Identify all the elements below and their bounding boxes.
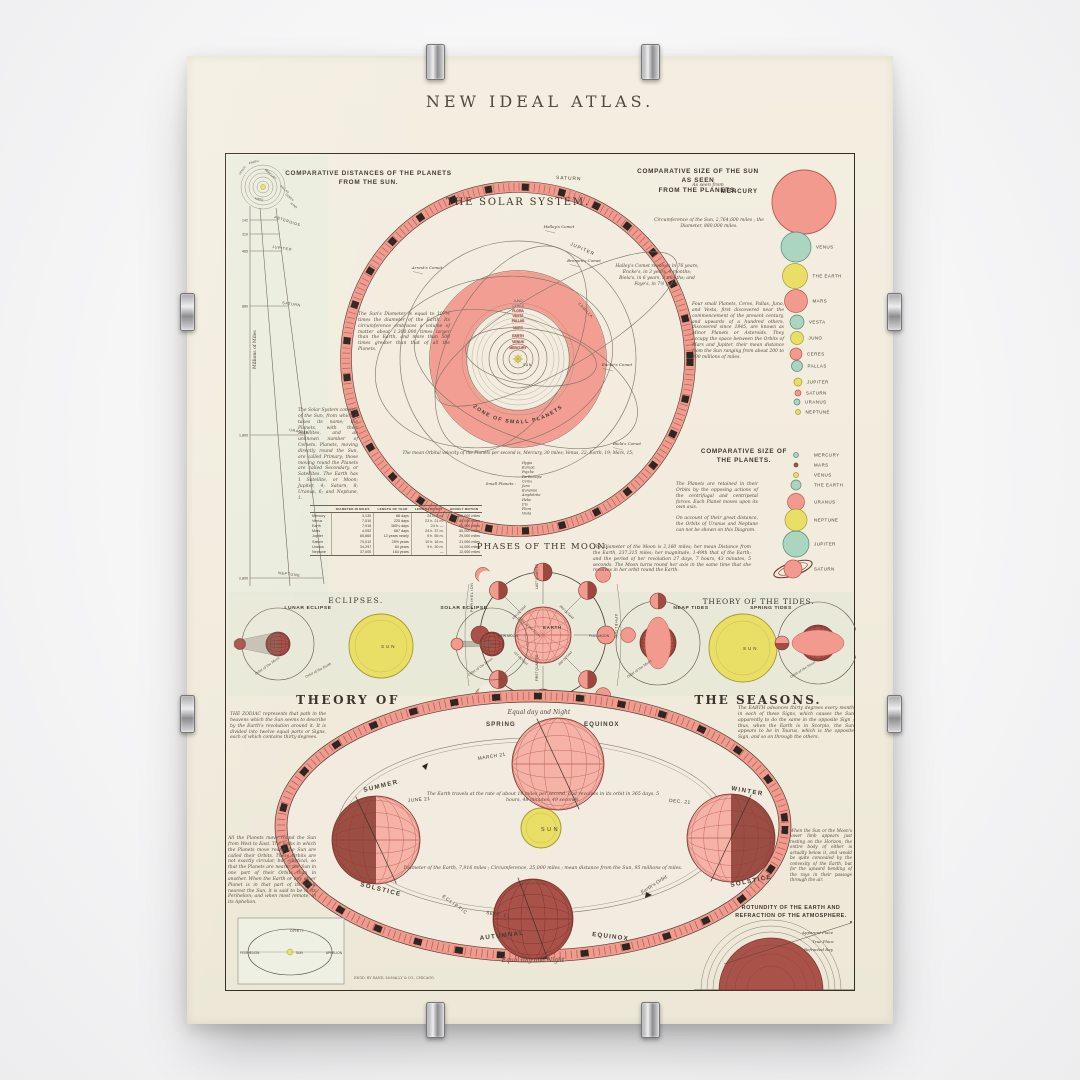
the earth-label: THE EARTH xyxy=(813,274,842,279)
orbit-name-pallas: PALLAS xyxy=(512,319,525,323)
small-planet-name: Amphitrite xyxy=(521,493,541,497)
product-photo: NEW IDEAL ATLAS. xyxy=(0,0,1080,1080)
planet-orbits-note: All the Planets move round the Sun from … xyxy=(228,836,316,906)
orbit-name-venus: VENUS xyxy=(512,340,524,344)
g-planetsizes-uranus xyxy=(788,494,805,511)
equal-day-night-bottom: Equal day and Night xyxy=(478,957,588,965)
orbit-name-earth: EARTH xyxy=(512,334,524,338)
globe-half-right xyxy=(687,794,775,882)
framed-poster: NEW IDEAL ATLAS. xyxy=(187,56,893,1024)
orbit-box-sun-label: SUN xyxy=(296,951,303,955)
g-planetsizes-jupiter xyxy=(783,531,809,557)
outer-moon xyxy=(621,628,636,643)
last-quarter-label: LAST QUARTER xyxy=(535,563,539,589)
saturn-label: SATURN xyxy=(814,567,835,572)
mercury-label: MERCURY xyxy=(814,453,840,458)
table-row: Neptune37,000164 years—12,000 miles xyxy=(310,549,482,555)
sun-diameter-note: The Sun's Diameter is equal to 107½ time… xyxy=(358,312,450,353)
uranus-label: URANUS xyxy=(805,400,827,405)
g-sunsizes-pallas xyxy=(792,361,803,372)
orbit-box-sun xyxy=(287,949,293,955)
uranus-label: URANUS xyxy=(814,500,836,505)
jupiter-label: JUPITER xyxy=(807,380,829,385)
fan-tick-value: 310 xyxy=(242,232,248,236)
venus-label: VENUS xyxy=(816,245,834,250)
seasons-heading-left: THEORY OF xyxy=(288,693,408,707)
publisher-imprint: ENGD. BY RAND, McNALLY & CO., CHICAGO. xyxy=(354,976,494,980)
fan-axis-label: Millions of Miles xyxy=(252,330,258,369)
fan-tick-value: 880 xyxy=(242,304,248,308)
tides-heading: THEORY OF THE TIDES. xyxy=(676,597,841,606)
earth-dome xyxy=(719,938,823,990)
moon-earth-label: EARTH xyxy=(543,625,562,630)
new-moon-label: NEW MOON xyxy=(498,634,518,638)
equal-day-night-top: Equal day and Night xyxy=(484,709,594,717)
ceres-label: CERES xyxy=(807,352,825,357)
eclipsed-moon xyxy=(235,639,246,650)
uranus-neptune-note: On account of their great distance, the … xyxy=(676,516,758,534)
orbital-velocity-note: The mean Orbital velocity of the Planets… xyxy=(388,451,648,457)
first-quarter-label: FIRST QUARTER xyxy=(535,654,539,681)
refraction-note: When the Sun or the Moon's lower limb ap… xyxy=(790,828,852,883)
venus-label: VENUS xyxy=(814,473,832,478)
aphelion-label: APHELION xyxy=(614,614,618,639)
orbit-name-mars: MARS xyxy=(513,326,524,330)
saturn-ring-label: SATURN xyxy=(556,175,582,182)
g-planetsizes-venus xyxy=(794,473,799,478)
seasons-diagram: SUN SPRING EQUINOX MARCH 21 SUMMER JUNE … xyxy=(275,690,791,962)
chart-area: MERCURYVENUSEARTHMARSPALLASVESTAFLORACER… xyxy=(225,153,855,991)
neap-tides-label: NEAP TIDES xyxy=(658,606,724,611)
table-header xyxy=(310,506,332,513)
g-sunsizes-mars xyxy=(785,290,808,313)
small-planet-name: Iris xyxy=(521,502,528,506)
planet-data-table: DIAMETER IN MILESLENGTH OF YEARLENGTH OF… xyxy=(310,505,482,589)
earth-diameter-note: Diameter of the Earth, 7,916 miles ; Cir… xyxy=(393,866,693,872)
full-moon-label: FULL MOON xyxy=(589,634,610,638)
moon-note: The Diameter of the Moon is 2,160 miles;… xyxy=(593,545,751,574)
table-header: HOURLY MOTION xyxy=(446,506,482,513)
g-sunsizes-venus xyxy=(781,232,811,262)
eclipsing-moon xyxy=(451,638,463,650)
small-planet-name: Vesta xyxy=(522,512,531,516)
g-sunsizes-neptune xyxy=(796,410,801,415)
frame-clip-right-upper xyxy=(887,293,902,331)
solar-eclipse-label: SOLAR ECLIPSE xyxy=(431,606,497,611)
sun-circumference-note: Circumference of the Sun, 2,764,600 mile… xyxy=(646,218,772,230)
tides-sun-label: SUN xyxy=(743,646,759,651)
g-sunsizes-vesta xyxy=(790,315,804,329)
refracted-ray-label: Refracted Ray xyxy=(803,947,834,952)
fan-tick-value: 142 xyxy=(242,218,248,222)
g-planetsizes-saturn xyxy=(784,560,802,578)
g-sunsizes-the-earth xyxy=(783,264,808,289)
small-planet-name: Hygia xyxy=(521,461,532,465)
poster-title: NEW IDEAL ATLAS. xyxy=(187,92,893,111)
comet-label: Brorsen's Comet xyxy=(566,258,601,263)
comet-label: Halley's Comet xyxy=(543,224,575,229)
small-planet-name: Juno xyxy=(521,484,530,488)
spring-equinox-label: EQUINOX xyxy=(584,721,620,728)
planet-size-column: MERCURYMARSVENUSTHE EARTHURANUSNEPTUNEJU… xyxy=(772,453,843,582)
perihelion-orbit-box: ORBIT PERIHELION APHELION SUN xyxy=(238,918,344,984)
frame-clip-right-lower xyxy=(887,695,902,733)
neptune-label: NEPTUNE xyxy=(806,410,830,415)
globe-light xyxy=(515,607,571,663)
juno-label: JUNO xyxy=(809,336,823,341)
fan-tick-value: 1,800 xyxy=(239,433,248,437)
zodiac-signs-note: The EARTH advances thirty degrees every … xyxy=(738,706,854,741)
distances-heading: COMPARATIVE DISTANCES OF THE PLANETS FRO… xyxy=(271,169,466,188)
jupiter-label: JUPITER xyxy=(814,542,836,547)
neptune-label: NEPTUNE xyxy=(814,518,838,523)
frame-clip-left-lower xyxy=(180,695,195,733)
orbit-name-flora: FLORA xyxy=(512,309,524,313)
seasons-heading-right: THE SEASONS. xyxy=(688,693,828,707)
table-header: LENGTH OF YEAR xyxy=(374,506,412,513)
pallas-label: PALLAS xyxy=(808,364,827,369)
solar-system-title: THE SOLAR SYSTEM. xyxy=(443,197,593,208)
mars-label: MARS xyxy=(813,299,828,304)
jupiter-orbit-label: JUPITER xyxy=(570,241,596,256)
rotundity-diagram: Apparent Place True Place Refracted Ray xyxy=(694,920,855,990)
saturn-label: SATURN xyxy=(806,391,827,396)
zodiac-note: THE ZODIAC represents that path in the h… xyxy=(230,712,326,741)
orbit-box-perihelion-label: PERIHELION xyxy=(240,951,260,955)
apparent-place-label: Apparent Place xyxy=(801,930,834,935)
comet-label: Arrest's Comet xyxy=(411,265,443,270)
frame-clip-top-right xyxy=(641,44,660,80)
g-planetsizes-neptune xyxy=(785,509,807,531)
g-sunsizes-ceres xyxy=(790,348,802,360)
orbit-name-mercury: MERCURY xyxy=(509,346,527,350)
orbit-name-vesta: VESTA xyxy=(513,314,525,318)
frame-clip-bottom-left xyxy=(426,1002,445,1038)
fan-sun xyxy=(261,185,266,190)
orbit-box-aphelion-label: APHELION xyxy=(326,951,343,955)
vesta-label: VESTA xyxy=(809,320,826,325)
spring-tides-label: SPRING TIDES xyxy=(738,606,804,611)
table-header: DIAMETER IN MILES xyxy=(332,506,374,513)
comet-periods-note: Halley's Comet revolves in 76 years; Enc… xyxy=(614,264,700,287)
sun-center: SUN xyxy=(513,354,532,368)
sun-as-seen-from-mercury xyxy=(772,170,836,234)
table-header: LENGTH OF DAY xyxy=(411,506,446,513)
g-sunsizes-juno xyxy=(791,332,804,345)
seasons-sun-label: SUN xyxy=(541,827,560,833)
mars-label: MARS xyxy=(814,463,829,468)
small-planet-name: Hebe xyxy=(521,498,531,502)
frame-clip-top-left xyxy=(426,44,445,80)
comet-label: Biela's Comet xyxy=(612,441,641,446)
small-planet-name: Eunomia xyxy=(521,489,537,493)
earth-travel-note: The Earth travels at the rate of about 1… xyxy=(423,792,663,804)
g-sunsizes-saturn xyxy=(795,390,801,396)
small-planets-label: Small Planets : xyxy=(486,481,517,486)
sun-label: SUN xyxy=(523,363,532,367)
planet-sizes-heading: COMPARATIVE SIZE OF THE PLANETS. xyxy=(681,447,807,466)
solar-system-diagram: MERCURYVENUSEARTHMARSPALLASVESTAFLORACER… xyxy=(341,175,696,536)
the earth-label: THE EARTH xyxy=(814,483,843,488)
g-sunsizes-jupiter xyxy=(794,378,802,386)
eclipses-heading: ECLIPSES. xyxy=(321,596,391,605)
minor-planets-note: Four small Planets, Ceres, Pallas, Juno,… xyxy=(692,302,784,360)
eclipse-sun-label: SUN xyxy=(381,644,397,649)
small-planet-name: Psyche xyxy=(521,470,534,474)
small-planet-name: Parthenope xyxy=(521,475,542,479)
planets-retained-note: The Planets are retained in their Orbits… xyxy=(676,482,758,511)
orbit-name-ceres: CERES xyxy=(512,304,524,308)
frame-clip-left-upper xyxy=(180,293,195,331)
lunar-eclipse-label: LUNAR ECLIPSE xyxy=(276,606,340,611)
g-sunsizes-uranus xyxy=(794,399,800,405)
true-place-label: True Place xyxy=(812,939,834,944)
spring-tide-bulge xyxy=(792,630,844,656)
as-seen-from-mercury: As seen from MERCURY xyxy=(658,183,758,195)
fan-tick-value: 2,800 xyxy=(239,576,248,580)
spring-label: SPRING xyxy=(486,721,516,728)
small-planet-name: Flora xyxy=(521,507,531,511)
rotundity-heading: ROTUNDITY OF THE EARTH AND REFRACTION OF… xyxy=(728,904,854,920)
orbit-name-juno: JUNO xyxy=(513,299,523,303)
small-planet-name: Europa xyxy=(521,466,535,470)
comet-label: Encke's Comet xyxy=(601,362,633,367)
fan-tick-value: 485 xyxy=(242,249,248,253)
solar-system-margin-note: The Solar System consists of the Sun, fr… xyxy=(298,408,358,502)
sun-size-column: VENUSTHE EARTHMARSVESTAJUNOCERESPALLASJU… xyxy=(772,170,842,415)
g-planetsizes-the-earth xyxy=(791,480,801,490)
small-planet-name: Ceres xyxy=(522,479,532,483)
orbit-box-orbit-label: ORBIT xyxy=(290,929,304,933)
frame-clip-bottom-right xyxy=(641,1002,660,1038)
